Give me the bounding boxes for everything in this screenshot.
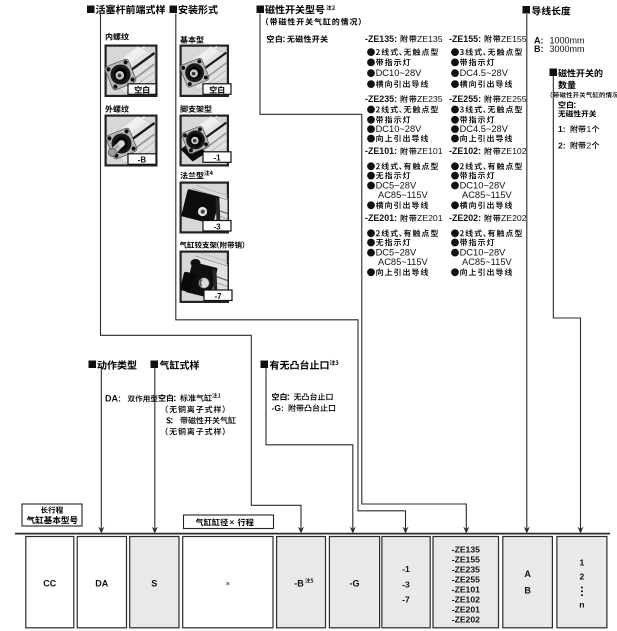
svg-text:2:: 2: (558, 140, 566, 150)
svg-text:3000mm: 3000mm (550, 44, 585, 54)
svg-text:-B: -B (138, 156, 147, 165)
svg-text:ZE101: ZE101 (417, 146, 443, 156)
svg-text:AC85~115V: AC85~115V (378, 190, 429, 200)
svg-text:-ZE155:: -ZE155: (449, 34, 481, 44)
svg-text:DC10~28V: DC10~28V (376, 68, 423, 78)
svg-text:-ZE102: -ZE102 (452, 594, 480, 604)
svg-text:-7: -7 (402, 595, 410, 605)
svg-text:AC85~115V: AC85~115V (462, 257, 513, 267)
svg-text:1: 1 (580, 558, 585, 568)
svg-text:-1: -1 (402, 564, 410, 574)
svg-text:-ZE255: -ZE255 (452, 575, 480, 585)
svg-text:-ZE202:: -ZE202: (449, 213, 481, 223)
svg-text:AC85~115V: AC85~115V (462, 190, 513, 200)
svg-text:DC4.5~28V: DC4.5~28V (460, 124, 509, 134)
svg-text:DC5~28V: DC5~28V (376, 180, 417, 190)
svg-text:n: n (579, 600, 584, 610)
svg-text:DC10~28V: DC10~28V (376, 124, 423, 134)
svg-text:-ZE155: -ZE155 (452, 555, 480, 565)
svg-text:S: S (151, 579, 157, 589)
svg-text:-B: -B (294, 579, 304, 589)
svg-text:-ZE135: -ZE135 (452, 545, 480, 555)
svg-text:ZE201: ZE201 (417, 213, 443, 223)
svg-text:-1: -1 (213, 154, 221, 163)
svg-text:B:: B: (534, 44, 544, 54)
svg-text:-ZE201:: -ZE201: (365, 213, 397, 223)
svg-text:×: × (230, 518, 235, 527)
svg-text:-ZE202: -ZE202 (452, 614, 480, 624)
svg-text:-ZE101:: -ZE101: (365, 146, 397, 156)
svg-text:A: A (524, 569, 531, 579)
svg-text:1: 1 (587, 124, 592, 134)
svg-text:-G: -G (350, 579, 360, 589)
svg-text:-3: -3 (213, 222, 221, 231)
svg-text:ZE135: ZE135 (417, 34, 443, 44)
svg-text:DA: DA (95, 579, 108, 589)
svg-text:DA:: DA: (105, 394, 121, 404)
svg-text:B: B (524, 586, 531, 596)
svg-text:-ZE235:: -ZE235: (365, 94, 397, 104)
svg-text:-3: -3 (402, 579, 410, 589)
svg-text:-ZE101: -ZE101 (452, 585, 480, 595)
svg-text:2: 2 (580, 572, 585, 582)
svg-text:-7: -7 (214, 292, 222, 301)
svg-text:-ZE135:: -ZE135: (365, 34, 397, 44)
svg-text:1:: 1: (558, 124, 566, 134)
svg-text:ZE202: ZE202 (501, 213, 527, 223)
svg-text:-ZE102:: -ZE102: (449, 146, 481, 156)
svg-text:ZE102: ZE102 (501, 146, 527, 156)
svg-text:×: × (226, 579, 230, 588)
svg-text:ZE235: ZE235 (417, 94, 443, 104)
svg-text:-G:: -G: (272, 403, 284, 413)
svg-text:-ZE201: -ZE201 (452, 604, 480, 614)
svg-text:AC85~115V: AC85~115V (378, 257, 429, 267)
svg-text:ZE255: ZE255 (501, 94, 527, 104)
svg-text:CC: CC (43, 579, 56, 589)
svg-text:2: 2 (587, 140, 592, 150)
svg-text:-ZE235: -ZE235 (452, 565, 480, 575)
svg-text:ZE155: ZE155 (501, 34, 527, 44)
svg-text:DC4.5~28V: DC4.5~28V (460, 68, 509, 78)
svg-text:-ZE255:: -ZE255: (449, 94, 481, 104)
svg-text:DC10~28V: DC10~28V (460, 180, 507, 190)
